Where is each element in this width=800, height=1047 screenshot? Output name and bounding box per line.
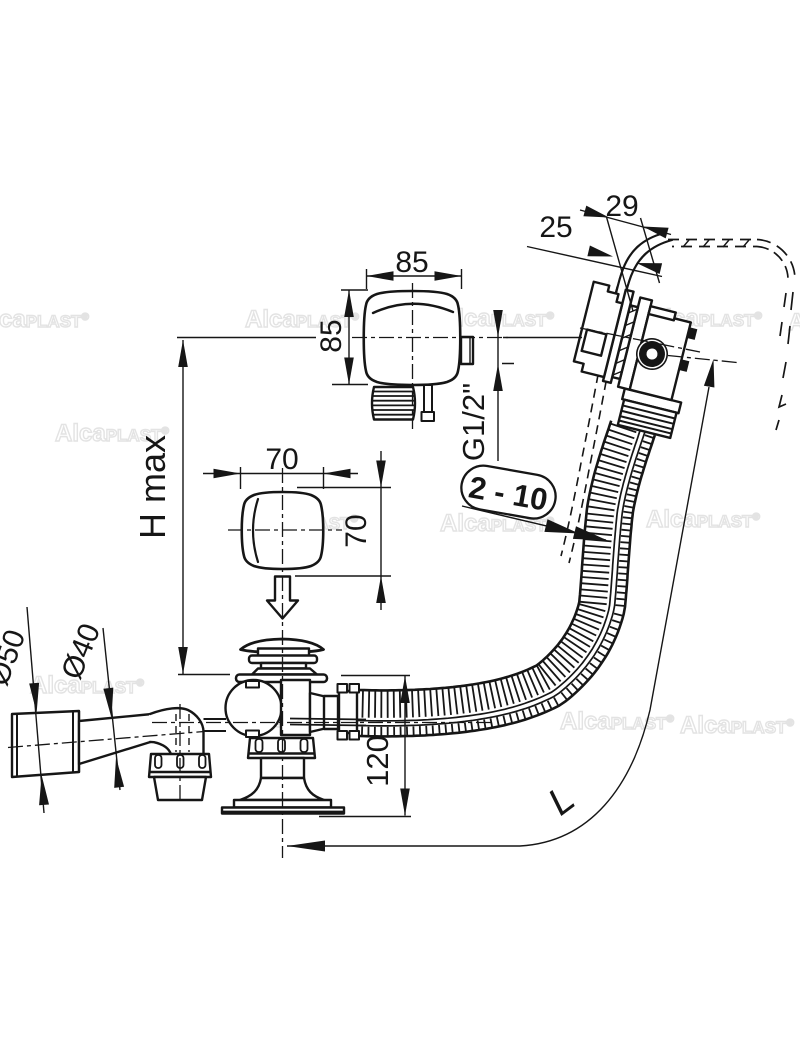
- svg-text:25: 25: [539, 211, 572, 244]
- svg-text:70: 70: [340, 514, 373, 547]
- svg-text:Ø50: Ø50: [0, 625, 32, 690]
- svg-text:85: 85: [315, 319, 348, 352]
- svg-text:L: L: [541, 778, 583, 824]
- svg-text:AlcaPLAST®: AlcaPLAST®: [560, 708, 674, 735]
- svg-text:AlcaPLAST®: AlcaPLAST®: [0, 306, 89, 333]
- svg-text:AlcaPLAST®: AlcaPLAST®: [646, 506, 760, 533]
- svg-text:70: 70: [265, 443, 298, 476]
- svg-text:Ø40: Ø40: [55, 619, 107, 684]
- svg-text:29: 29: [605, 190, 638, 223]
- svg-text:H max: H max: [132, 435, 173, 539]
- svg-text:85: 85: [395, 246, 428, 279]
- svg-text:AlcaPLAST®: AlcaPLAST®: [680, 712, 794, 739]
- svg-text:120: 120: [360, 735, 395, 787]
- svg-text:G1/2": G1/2": [456, 383, 491, 461]
